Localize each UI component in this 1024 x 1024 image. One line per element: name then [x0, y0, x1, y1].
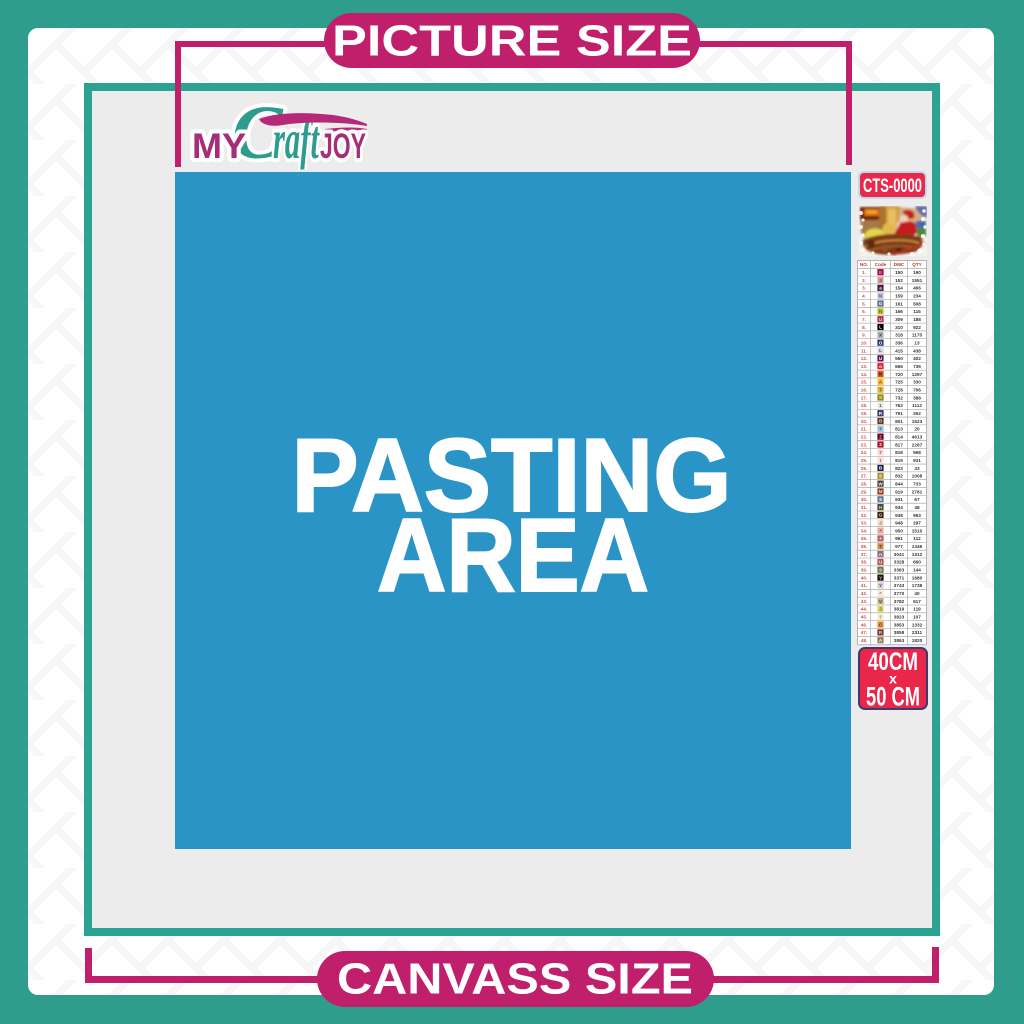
svg-text:20.: 20. — [861, 419, 867, 424]
svg-text:188: 188 — [913, 317, 921, 322]
svg-text:a: a — [879, 286, 882, 291]
svg-text:725: 725 — [895, 380, 903, 385]
svg-text:823: 823 — [895, 466, 903, 471]
svg-text:660: 660 — [913, 560, 921, 565]
svg-text:938: 938 — [895, 513, 903, 518]
svg-text:150: 150 — [895, 270, 903, 275]
svg-text:993: 993 — [913, 513, 921, 518]
svg-text:3: 3 — [879, 278, 882, 283]
svg-text:119: 119 — [913, 607, 921, 612]
svg-text:1: 1 — [879, 403, 882, 408]
svg-text:3858: 3858 — [894, 630, 905, 635]
svg-text:2.: 2. — [862, 278, 866, 283]
svg-text:466: 466 — [913, 286, 921, 291]
svg-text:3041: 3041 — [894, 552, 905, 557]
svg-text:3853: 3853 — [894, 622, 905, 627]
svg-text:6.: 6. — [862, 309, 866, 314]
svg-text:CTS-0000: CTS-0000 — [863, 176, 922, 197]
svg-text:733: 733 — [913, 481, 921, 486]
svg-text:50 CM: 50 CM — [866, 682, 920, 710]
svg-text:1332: 1332 — [912, 622, 923, 627]
svg-text:21.: 21. — [861, 427, 867, 432]
svg-text:?: ? — [879, 614, 882, 619]
svg-text:+: + — [879, 427, 882, 432]
svg-text:1.: 1. — [862, 270, 866, 275]
svg-text:508: 508 — [913, 301, 921, 306]
svg-text:813: 813 — [895, 427, 903, 432]
svg-text:934: 934 — [895, 505, 903, 510]
svg-text:3371: 3371 — [894, 575, 905, 580]
svg-text:47.: 47. — [861, 630, 867, 635]
svg-text:931: 931 — [895, 497, 903, 502]
svg-text:8.: 8. — [862, 325, 866, 330]
svg-text:15.: 15. — [861, 380, 867, 385]
svg-text:33: 33 — [914, 466, 920, 471]
svg-text:24.: 24. — [861, 450, 867, 455]
svg-text:1510: 1510 — [912, 528, 923, 533]
svg-text:12.: 12. — [861, 356, 867, 361]
svg-text:977: 977 — [895, 544, 903, 549]
svg-text:DMC: DMC — [894, 262, 905, 267]
svg-text:10.: 10. — [861, 340, 867, 345]
svg-text:7: 7 — [879, 450, 882, 455]
svg-text:7.: 7. — [862, 317, 866, 322]
svg-text:438: 438 — [913, 348, 921, 353]
svg-text:L: L — [879, 348, 882, 353]
svg-text:38.: 38. — [861, 560, 867, 565]
svg-text:+: + — [879, 536, 882, 541]
svg-text:40: 40 — [914, 591, 920, 596]
svg-text:1820: 1820 — [912, 638, 923, 643]
svg-text:2311: 2311 — [912, 630, 923, 635]
svg-text:817: 817 — [895, 442, 903, 447]
svg-text:Z: Z — [879, 434, 882, 439]
svg-text:402: 402 — [913, 356, 921, 361]
svg-text:33.: 33. — [861, 521, 867, 526]
svg-text:QTY: QTY — [912, 262, 921, 267]
svg-text:67: 67 — [914, 497, 920, 502]
svg-text:3819: 3819 — [894, 607, 905, 612]
svg-text:L: L — [879, 325, 882, 330]
svg-text:310: 310 — [895, 325, 903, 330]
svg-text:297: 297 — [913, 521, 921, 526]
svg-text:43.: 43. — [861, 599, 867, 604]
svg-text:5: 5 — [879, 497, 882, 502]
svg-text:152: 152 — [895, 278, 903, 283]
svg-text:844: 844 — [895, 481, 903, 486]
svg-text:336: 336 — [895, 340, 903, 345]
svg-text:14.: 14. — [861, 372, 867, 377]
svg-text:252: 252 — [913, 411, 921, 416]
svg-text:5.: 5. — [862, 301, 866, 306]
svg-text:948: 948 — [895, 521, 903, 526]
svg-text:706: 706 — [913, 387, 921, 392]
svg-text:9: 9 — [879, 567, 882, 572]
svg-text:318: 318 — [895, 333, 903, 338]
svg-text:46.: 46. — [861, 622, 867, 627]
svg-text:T: T — [879, 544, 882, 549]
svg-text:388: 388 — [913, 395, 921, 400]
svg-text:42.: 42. — [861, 591, 867, 596]
svg-text:M: M — [879, 489, 883, 494]
svg-text:3782: 3782 — [894, 599, 905, 604]
svg-text:29.: 29. — [861, 489, 867, 494]
svg-text:550: 550 — [895, 356, 903, 361]
svg-text:791: 791 — [895, 411, 903, 416]
svg-text:25.: 25. — [861, 458, 867, 463]
svg-text:E: E — [879, 270, 882, 275]
svg-text:17.: 17. — [861, 395, 867, 400]
svg-text:Y: Y — [879, 575, 882, 580]
svg-text:W: W — [878, 481, 883, 486]
svg-text:36.: 36. — [861, 544, 867, 549]
svg-text:41.: 41. — [861, 583, 867, 588]
svg-text:AREA: AREA — [377, 498, 649, 614]
svg-text:34.: 34. — [861, 528, 867, 533]
svg-text:4613: 4613 — [912, 434, 923, 439]
svg-text:G: G — [879, 301, 883, 306]
svg-text:728: 728 — [895, 387, 903, 392]
svg-text:3863: 3863 — [894, 638, 905, 643]
svg-text:39.: 39. — [861, 568, 867, 573]
svg-text:159: 159 — [895, 294, 903, 299]
svg-text:115: 115 — [913, 309, 921, 314]
svg-text:J: J — [879, 520, 882, 525]
svg-text:666: 666 — [895, 364, 903, 369]
svg-text:48.: 48. — [861, 638, 867, 643]
svg-text:18.: 18. — [861, 403, 867, 408]
svg-text:MY: MY — [192, 127, 246, 166]
svg-text:617: 617 — [913, 599, 921, 604]
svg-text:762: 762 — [895, 403, 903, 408]
svg-text:2287: 2287 — [912, 442, 923, 447]
svg-text:832: 832 — [895, 474, 903, 479]
svg-text:*: * — [880, 528, 882, 533]
svg-text:4.: 4. — [862, 294, 866, 299]
svg-text:190: 190 — [913, 270, 921, 275]
svg-text:3363: 3363 — [894, 568, 905, 573]
svg-text:166: 166 — [895, 309, 903, 314]
svg-text:3770: 3770 — [894, 591, 905, 596]
svg-text:30.: 30. — [861, 497, 867, 502]
svg-text:8: 8 — [879, 474, 882, 479]
svg-text:11.: 11. — [861, 348, 867, 353]
svg-text:1297: 1297 — [912, 372, 923, 377]
svg-text:22.: 22. — [861, 434, 867, 439]
svg-text:950: 950 — [895, 528, 903, 533]
svg-text:48: 48 — [914, 505, 920, 510]
svg-text:PICTURE SIZE: PICTURE SIZE — [332, 16, 692, 65]
svg-text:Y: Y — [879, 583, 882, 588]
svg-text:107: 107 — [913, 615, 921, 620]
svg-text:O: O — [879, 340, 883, 345]
svg-text:330: 330 — [913, 380, 921, 385]
svg-text:931: 931 — [913, 458, 921, 463]
svg-text:31.: 31. — [861, 505, 867, 510]
svg-text:h: h — [879, 309, 882, 314]
svg-text:JOY: JOY — [320, 127, 366, 166]
svg-text:814: 814 — [895, 434, 903, 439]
svg-text:1738: 1738 — [912, 583, 923, 588]
svg-text:28.: 28. — [861, 481, 867, 486]
svg-text:44.: 44. — [861, 607, 867, 612]
svg-text:7: 7 — [879, 387, 882, 392]
svg-text:415: 415 — [895, 348, 903, 353]
svg-text:32.: 32. — [861, 513, 867, 518]
svg-text:26.: 26. — [861, 466, 867, 471]
svg-text:G: G — [879, 513, 883, 518]
svg-text:1346: 1346 — [912, 544, 923, 549]
svg-text:37.: 37. — [861, 552, 867, 557]
svg-text:13.: 13. — [861, 364, 867, 369]
svg-text:154: 154 — [895, 286, 903, 291]
svg-text:^: ^ — [879, 591, 882, 596]
svg-text:J: J — [879, 607, 882, 612]
svg-text:3328: 3328 — [894, 560, 905, 565]
svg-text:3823: 3823 — [894, 615, 905, 620]
svg-text:19.: 19. — [861, 411, 867, 416]
svg-text:1551: 1551 — [912, 278, 923, 283]
svg-text:27.: 27. — [861, 474, 867, 479]
svg-text:112: 112 — [913, 536, 921, 541]
svg-text:801: 801 — [895, 419, 903, 424]
svg-text:o: o — [879, 364, 882, 369]
svg-text:144: 144 — [913, 568, 921, 573]
svg-text:Code: Code — [875, 262, 887, 267]
svg-text:2781: 2781 — [912, 489, 923, 494]
svg-text:1175: 1175 — [912, 333, 923, 338]
svg-text:2: 2 — [879, 442, 882, 447]
svg-text:919: 919 — [895, 489, 903, 494]
svg-text:35.: 35. — [861, 536, 867, 541]
svg-text:568: 568 — [913, 450, 921, 455]
svg-text:1008: 1008 — [912, 474, 923, 479]
svg-text:735: 735 — [913, 364, 921, 369]
svg-text:S: S — [879, 395, 882, 400]
svg-text:309: 309 — [895, 317, 903, 322]
svg-text:NO.: NO. — [860, 262, 868, 267]
svg-text:20: 20 — [914, 427, 920, 432]
svg-text:9.: 9. — [862, 333, 866, 338]
svg-text:23.: 23. — [861, 442, 867, 447]
svg-text:1680: 1680 — [912, 575, 923, 580]
svg-text:961: 961 — [895, 536, 903, 541]
svg-text:3.: 3. — [862, 286, 866, 291]
svg-text:1312: 1312 — [912, 552, 923, 557]
svg-text:732: 732 — [895, 395, 903, 400]
svg-text:45.: 45. — [861, 615, 867, 620]
svg-text:1112: 1112 — [912, 403, 922, 408]
svg-text:40.: 40. — [861, 575, 867, 580]
svg-text:13: 13 — [914, 340, 920, 345]
svg-text:16.: 16. — [861, 387, 867, 392]
svg-text:818: 818 — [895, 450, 903, 455]
svg-text:1523: 1523 — [912, 419, 923, 424]
svg-text:234: 234 — [913, 294, 921, 299]
svg-text:n: n — [879, 552, 882, 557]
svg-text:3743: 3743 — [894, 583, 905, 588]
svg-text:819: 819 — [895, 458, 903, 463]
svg-text:CANVASS SIZE: CANVASS SIZE — [337, 954, 693, 1003]
svg-text:922: 922 — [913, 325, 921, 330]
svg-text:161: 161 — [895, 301, 903, 306]
svg-text:720: 720 — [895, 372, 903, 377]
